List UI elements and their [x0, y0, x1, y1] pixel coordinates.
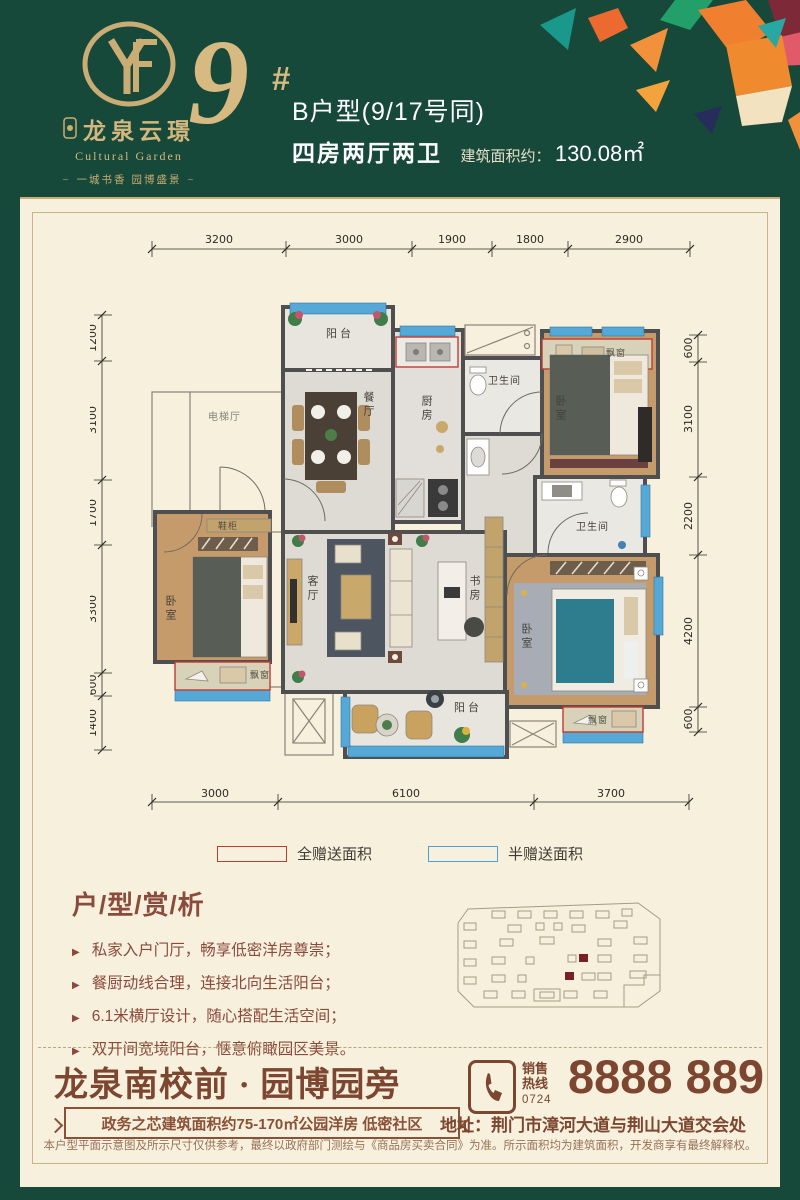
analysis-section: 户/型/赏/析 ▶私家入户门厅，畅享低密洋房尊崇； ▶餐厨动线合理，连接北向生活… — [72, 885, 442, 1070]
svg-text:4200: 4200 — [682, 617, 695, 645]
label-balcony-north: 阳台 — [326, 329, 354, 340]
label-dining: 餐厅 — [362, 391, 373, 419]
analysis-bullet: 双开间宽境阳台，惬意俯瞰园区美景。 — [92, 1037, 356, 1059]
svg-text:1400: 1400 — [90, 709, 99, 737]
svg-text:3000: 3000 — [335, 233, 363, 246]
site-minimap — [448, 897, 684, 1023]
legend-item-half-gift: 半赠送面积 — [428, 843, 583, 864]
label-elevator-hall: 电梯厅 — [208, 413, 241, 423]
svg-text:2200: 2200 — [682, 502, 695, 530]
brand-name-en: Cultural Garden — [34, 149, 224, 164]
highlighted-building — [565, 972, 574, 980]
svg-text:600: 600 — [682, 338, 695, 359]
address: 地址：荆门市漳河大道与荆山大道交会处 — [440, 1111, 746, 1136]
poster: 龙泉云璟 Cultural Garden ~一城书香 园博盛景~ 9 # B户型… — [0, 0, 800, 1200]
label-bedroom-ne: 卧室 — [554, 395, 565, 423]
brand-monogram-icon — [79, 18, 179, 110]
highlighted-building — [579, 954, 588, 962]
brand-name: 龙泉云璟 — [83, 112, 195, 146]
svg-text:1700: 1700 — [90, 499, 99, 527]
header: 龙泉云璟 Cultural Garden ~一城书香 园博盛景~ 9 # B户型… — [0, 0, 800, 197]
bullet-arrow-icon: ▶ — [72, 947, 80, 958]
label-bedroom-west: 卧室 — [164, 595, 175, 623]
content-panel: 3200 3000 1900 1800 2900 1200 — [20, 197, 780, 1187]
hotline-label-top: 销售 — [522, 1061, 552, 1076]
svg-text:3100: 3100 — [90, 406, 99, 434]
label-living: 客厅 — [306, 575, 317, 603]
analysis-list: ▶私家入户门厅，畅享低密洋房尊崇； ▶餐厨动线合理，连接北向生活阳台； ▶6.1… — [72, 938, 442, 1059]
hotline-labels: 销售 热线 0724 — [522, 1061, 552, 1108]
label-study: 书房 — [468, 575, 479, 603]
analysis-bullet: 私家入户门厅，畅享低密洋房尊崇； — [92, 938, 340, 960]
brand-seal-icon — [63, 117, 77, 139]
svg-text:3000: 3000 — [201, 787, 229, 800]
svg-text:1200: 1200 — [90, 324, 99, 352]
unit-layout: 四房两厅两卫 — [292, 140, 442, 166]
label-bath-mid: 卫生间 — [576, 523, 609, 533]
location-headline: 龙泉南校前 · 园博园旁 — [54, 1057, 400, 1106]
floor-plan-drawing: 3200 3000 1900 1800 2900 1200 — [90, 227, 710, 812]
flourish-icon: ~ — [62, 174, 70, 186]
legend-label-full-gift: 全赠送面积 — [297, 843, 372, 864]
analysis-bullet: 餐厨动线合理，连接北向生活阳台； — [92, 971, 340, 993]
legend-swatch-full-gift — [217, 846, 287, 862]
area-value: 130.08㎡ — [555, 141, 644, 166]
phone-icon — [468, 1060, 516, 1114]
phone-handset-icon — [480, 1072, 504, 1102]
flourish-icon: ~ — [187, 174, 195, 186]
svg-text:1900: 1900 — [438, 233, 466, 246]
label-bay-west: 飘窗 — [250, 671, 270, 680]
legend-swatch-half-gift — [428, 846, 498, 862]
legend-label-half-gift: 半赠送面积 — [508, 843, 583, 864]
svg-text:1800: 1800 — [516, 233, 544, 246]
ribbon-chevron-left-icon — [48, 1118, 64, 1134]
floor-plan: 3200 3000 1900 1800 2900 1200 — [90, 227, 710, 812]
analysis-bullet: 6.1米横厅设计，随心搭配生活空间； — [92, 1004, 346, 1026]
svg-text:3200: 3200 — [205, 233, 233, 246]
svg-text:3100: 3100 — [682, 405, 695, 433]
list-item: ▶6.1米横厅设计，随心搭配生活空间； — [72, 1004, 442, 1026]
svg-text:2900: 2900 — [615, 233, 643, 246]
unit-title: B户型(9/17号同) — [292, 92, 485, 128]
bullet-arrow-icon: ▶ — [72, 980, 80, 991]
building-number: 9 — [188, 16, 249, 150]
label-kitchen: 厨房 — [420, 395, 431, 423]
svg-text:6100: 6100 — [392, 787, 420, 800]
list-item: ▶双开间宽境阳台，惬意俯瞰园区美景。 — [72, 1037, 442, 1059]
legend-item-full-gift: 全赠送面积 — [217, 843, 372, 864]
label-bay-master: 飘窗 — [588, 716, 608, 725]
svg-text:600: 600 — [682, 709, 695, 730]
dashed-divider — [38, 1047, 762, 1048]
label-bay-ne: 飘窗 — [606, 349, 626, 358]
hotline-label-bottom: 热线 — [522, 1076, 552, 1091]
analysis-title: 户/型/赏/析 — [72, 885, 442, 922]
bullet-arrow-icon: ▶ — [72, 1013, 80, 1024]
area-label: 建筑面积约： — [460, 148, 550, 165]
unit-subtitle: 四房两厅两卫 建筑面积约： 130.08㎡ — [292, 134, 644, 168]
legend: 全赠送面积 半赠送面积 — [20, 843, 780, 864]
disclaimer: 本户型平面示意图及所示尺寸仅供参考，最终以政府部门测绘与《商品房买卖合同》为准。… — [20, 1137, 780, 1153]
brand-tagline: ~一城书香 园博盛景~ — [34, 172, 224, 187]
ribbon-text: 政务之芯建筑面积约75-170㎡公园洋房 低密社区 — [102, 1113, 423, 1134]
building-number-mark: # — [272, 60, 290, 98]
tagline-ribbon: 政务之芯建筑面积约75-170㎡公园洋房 低密社区 — [64, 1107, 460, 1139]
label-bath-north: 卫生间 — [488, 377, 521, 387]
label-bedroom-master: 卧室 — [520, 623, 531, 651]
svg-text:3700: 3700 — [597, 787, 625, 800]
hotline-area-code: 0724 — [522, 1093, 552, 1108]
label-shoe-cabinet: 鞋柜 — [218, 522, 238, 531]
label-balcony-south: 阳台 — [454, 703, 482, 714]
list-item: ▶私家入户门厅，畅享低密洋房尊崇； — [72, 938, 442, 960]
svg-text:600: 600 — [90, 675, 99, 696]
phone-number: 8888 889 — [568, 1049, 764, 1104]
svg-text:3300: 3300 — [90, 595, 99, 623]
list-item: ▶餐厨动线合理，连接北向生活阳台； — [72, 971, 442, 993]
